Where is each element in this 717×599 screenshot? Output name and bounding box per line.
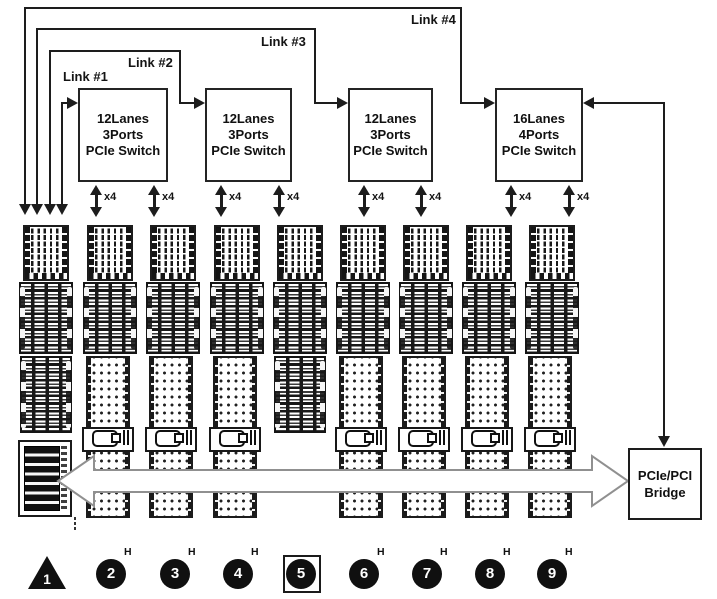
link2-approach-line [179, 102, 195, 104]
switch3-lanes: 12Lanes [350, 111, 431, 127]
marker6-h-superscript: H [377, 546, 385, 558]
pcie-switch-3: 12Lanes 3Ports PCIe Switch [348, 88, 433, 182]
pcie-slot-2 [86, 225, 134, 525]
pcie-slot-8 [465, 225, 513, 525]
link3-left-drop-line [36, 28, 38, 206]
slot2-card-slot [86, 356, 130, 518]
x4-label: x4 [372, 191, 384, 203]
switch4-type: PCIe Switch [497, 143, 581, 159]
switch1-ports: 3Ports [80, 127, 166, 143]
marker4-h-superscript: H [251, 546, 259, 558]
slot8-socket-block [462, 282, 516, 354]
link1-left-drop-line [61, 103, 63, 206]
slot5-socket-block [273, 282, 327, 354]
slot-marker-2: 2 [96, 559, 126, 589]
pcie-slot-3 [149, 225, 197, 525]
x4-port-arrow-icon [414, 185, 428, 217]
bridge-link-top-line [594, 102, 665, 104]
slot-marker-9: 9 [537, 559, 567, 589]
slot4-card-slot [213, 356, 257, 518]
slot1-pin-stub [74, 517, 76, 531]
slot1-system-connector [18, 440, 72, 517]
link4-slot-arrowhead-icon [19, 204, 31, 215]
slot6-edge-connector [340, 225, 386, 281]
switch1-lanes: 12Lanes [80, 111, 166, 127]
slot-marker-4: 4 [223, 559, 253, 589]
slot-marker-8: 8 [475, 559, 505, 589]
bridge-line2: Bridge [630, 484, 700, 501]
link2-label: Link #2 [128, 55, 173, 70]
slot2-socket-block [83, 282, 137, 354]
x4-label: x4 [229, 191, 241, 203]
pcie-pci-bridge: PCIe/PCI Bridge [628, 448, 702, 520]
switch2-ports: 3Ports [207, 127, 290, 143]
x4-label: x4 [162, 191, 174, 203]
link4-approach-line [460, 102, 485, 104]
link4-left-drop-line [24, 7, 26, 206]
slot4-retention-latch [209, 427, 261, 452]
slot3-card-slot [149, 356, 193, 518]
pcie-slot-7 [402, 225, 450, 525]
link2-mid-drop-line [179, 50, 181, 104]
switch3-type: PCIe Switch [350, 143, 431, 159]
link2-slot-arrowhead-icon [44, 204, 56, 215]
x4-port-arrow-icon [214, 185, 228, 217]
slot7-retention-latch [398, 427, 450, 452]
x4-label: x4 [104, 191, 116, 203]
slot1-edge-connector [23, 225, 69, 281]
link3-label: Link #3 [261, 34, 306, 49]
slot3-socket-block [146, 282, 200, 354]
slot3-retention-latch [145, 427, 197, 452]
switch2-type: PCIe Switch [207, 143, 290, 159]
marker2-h-superscript: H [124, 546, 132, 558]
slot-marker-6: 6 [349, 559, 379, 589]
bridge-link-drop-line [663, 102, 665, 437]
link3-approach-line [314, 102, 338, 104]
slot-marker-3: 3 [160, 559, 190, 589]
slot8-retention-latch [461, 427, 513, 452]
switch4-lanes: 16Lanes [497, 111, 581, 127]
slot5-edge-connector [277, 225, 323, 281]
x4-port-arrow-icon [147, 185, 161, 217]
link1-label: Link #1 [63, 69, 108, 84]
marker8-h-superscript: H [503, 546, 511, 558]
pcie-switch-1: 12Lanes 3Ports PCIe Switch [78, 88, 168, 182]
pcie-slot-5 [276, 225, 324, 525]
bridge-link-arrowhead-icon [658, 436, 670, 447]
x4-port-arrow-icon [562, 185, 576, 217]
slot6-socket-block [336, 282, 390, 354]
marker3-h-superscript: H [188, 546, 196, 558]
slot-marker-5: 5 [286, 559, 316, 589]
slot6-retention-latch [335, 427, 387, 452]
link3-mid-drop-line [314, 28, 316, 104]
x4-label: x4 [287, 191, 299, 203]
link1-slot-arrowhead-icon [56, 204, 68, 215]
slot2-retention-latch [82, 427, 134, 452]
switch2-lanes: 12Lanes [207, 111, 290, 127]
x4-port-arrow-icon [504, 185, 518, 217]
switch3-ports: 3Ports [350, 127, 431, 143]
pcie-topology-diagram: Link #1 Link #2 Link #3 Link #4 12Lanes … [0, 0, 717, 599]
switch4-ports: 4Ports [497, 127, 581, 143]
link3-slot-arrowhead-icon [31, 204, 43, 215]
link3-switch-arrowhead-icon [337, 97, 348, 109]
slot1-socket-block-lower [20, 356, 72, 433]
pcie-slot-6 [339, 225, 387, 525]
slot2-edge-connector [87, 225, 133, 281]
bridge-line1: PCIe/PCI [630, 467, 700, 484]
x4-port-arrow-icon [89, 185, 103, 217]
pcie-slot-4 [213, 225, 261, 525]
marker9-h-superscript: H [565, 546, 573, 558]
slot8-edge-connector [466, 225, 512, 281]
slot9-edge-connector [529, 225, 575, 281]
bridge-link-switch-arrowhead-icon [583, 97, 594, 109]
slot7-socket-block [399, 282, 453, 354]
x4-port-arrow-icon [272, 185, 286, 217]
link4-mid-drop-line [460, 7, 462, 104]
x4-port-arrow-icon [357, 185, 371, 217]
pcie-switch-4: 16Lanes 4Ports PCIe Switch [495, 88, 583, 182]
slot4-edge-connector [214, 225, 260, 281]
link2-top-line [49, 50, 181, 52]
link2-switch-arrowhead-icon [194, 97, 205, 109]
slot9-socket-block [525, 282, 579, 354]
x4-label: x4 [429, 191, 441, 203]
x4-label: x4 [577, 191, 589, 203]
slot9-card-slot [528, 356, 572, 518]
slot8-card-slot [465, 356, 509, 518]
x4-label: x4 [519, 191, 531, 203]
link4-switch-arrowhead-icon [484, 97, 495, 109]
slot-marker-7: 7 [412, 559, 442, 589]
marker1-number: 1 [28, 571, 66, 587]
slot7-card-slot [402, 356, 446, 518]
link2-left-drop-line [49, 50, 51, 206]
slot3-edge-connector [150, 225, 196, 281]
slot6-card-slot [339, 356, 383, 518]
link3-top-line [36, 28, 316, 30]
slot7-edge-connector [403, 225, 449, 281]
link4-label: Link #4 [411, 12, 456, 27]
pcie-slot-1 [22, 225, 70, 525]
switch1-type: PCIe Switch [80, 143, 166, 159]
pcie-slot-9 [528, 225, 576, 525]
link1-switch-arrowhead-icon [67, 97, 78, 109]
slot1-socket-block [19, 282, 73, 354]
slot4-socket-block [210, 282, 264, 354]
slot-marker-1: 1 [28, 556, 66, 589]
pcie-switch-2: 12Lanes 3Ports PCIe Switch [205, 88, 292, 182]
link4-top-line [24, 7, 462, 9]
slot5-socket-block-lower [274, 356, 326, 433]
slot9-retention-latch [524, 427, 576, 452]
marker7-h-superscript: H [440, 546, 448, 558]
